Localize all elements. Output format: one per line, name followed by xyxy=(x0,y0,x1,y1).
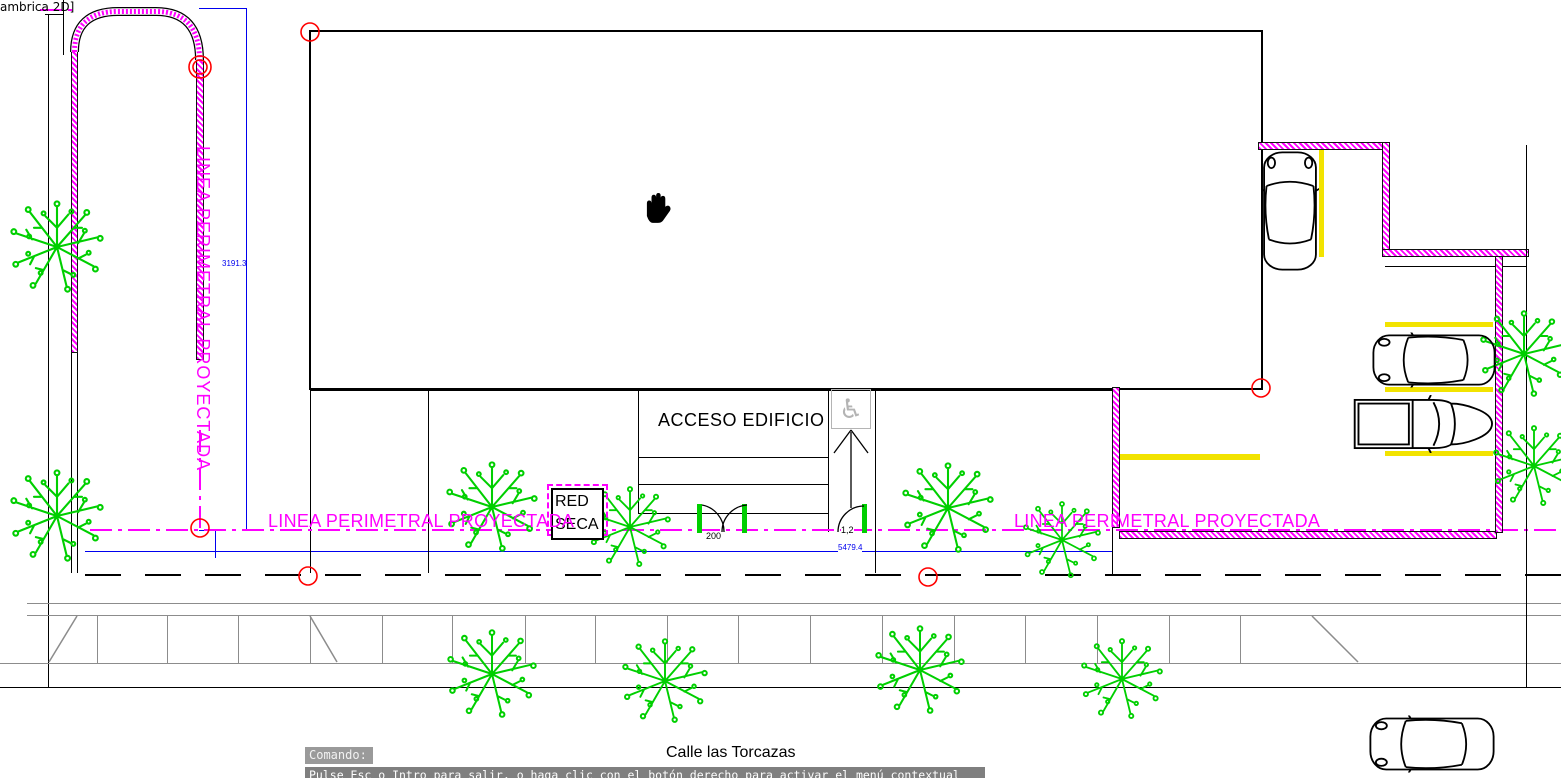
sidewalk-divider xyxy=(810,615,811,663)
sidewalk-divider xyxy=(1169,615,1170,663)
sidewalk-divider xyxy=(97,615,98,663)
plaza-divider xyxy=(428,390,429,573)
street-name-label: Calle las Torcazas xyxy=(666,744,796,762)
tree-icon xyxy=(1082,639,1162,718)
driveway-ramp-lines xyxy=(49,616,1358,662)
facade-line xyxy=(310,390,1113,391)
linea-perimetral-label-left: LINEA PERIMETRAL PROYECTADA xyxy=(268,511,574,532)
accessibility-icon: ♿ xyxy=(831,389,871,429)
sidewalk-edge-line xyxy=(27,603,1561,604)
tree-icon xyxy=(11,470,102,560)
parking-bay-line xyxy=(1385,266,1527,267)
parking-stripe xyxy=(1385,387,1493,392)
osnap-circle xyxy=(299,567,317,585)
wall-top-right-v xyxy=(1382,142,1390,256)
parking-stripe xyxy=(1385,451,1493,456)
tree-icon xyxy=(1481,311,1561,396)
car-icon xyxy=(1260,152,1320,269)
sidewalk-divider xyxy=(954,615,955,663)
tree-icon xyxy=(11,201,102,291)
ramp-arrow xyxy=(834,430,868,508)
lot-boundary-line xyxy=(48,14,49,688)
command-tooltip-bar: Pulse Esc o Intro para salir, o haga cli… xyxy=(305,767,985,778)
red-seca-line1: RED xyxy=(555,493,589,510)
dimension-value-vertical: 3191.3 xyxy=(222,259,246,268)
dimension-bracket-v xyxy=(215,530,216,558)
sidewalk-divider xyxy=(882,615,883,663)
dimension-value-horizontal: 5479.4 xyxy=(838,543,862,552)
ramp-door-label: 1,2 xyxy=(841,525,854,535)
pickup-truck-icon xyxy=(1355,395,1492,453)
parking-stripe xyxy=(1120,454,1260,460)
sidewalk-divider xyxy=(1240,615,1241,663)
sidewalk-divider xyxy=(738,615,739,663)
acceso-edificio-label: ACCESO EDIFICIO xyxy=(658,410,825,431)
wall-top-right-h xyxy=(1258,142,1385,150)
viewport-control-label[interactable]: ambrica 2D] xyxy=(0,0,74,14)
wall-edge-line xyxy=(1112,528,1113,575)
sidewalk-grid-line xyxy=(27,615,1561,616)
perimeter-wall-left-lower xyxy=(71,353,78,573)
command-prompt[interactable]: Comando: xyxy=(305,747,373,764)
tree-icon xyxy=(447,462,536,550)
wall-bottom-right xyxy=(1119,531,1497,539)
linea-perimetral-label-right: LINEA PERIMETRAL PROYECTADA xyxy=(1014,511,1320,532)
tree-icon xyxy=(903,463,992,551)
sidewalk-grid-line xyxy=(0,663,1561,664)
plaza-divider xyxy=(310,389,311,573)
parking-stripe xyxy=(1385,322,1493,327)
sidewalk-divider xyxy=(667,615,668,663)
entrance-step xyxy=(638,513,828,514)
sidewalk-divider xyxy=(1097,615,1098,663)
entrance-step xyxy=(638,457,828,458)
car-icon xyxy=(1373,331,1494,388)
sidewalk-divider xyxy=(1025,615,1026,663)
plaza-divider xyxy=(638,390,639,513)
car-symbols xyxy=(1260,152,1495,773)
site-edge-right xyxy=(1526,145,1527,688)
dimension-tick xyxy=(199,8,247,9)
perimeter-wall-corner xyxy=(75,12,200,61)
linea-perimetral-label-vertical: LINEA PERIMETRAL PROYECTADA xyxy=(192,146,213,471)
tree-icon xyxy=(1494,426,1561,505)
sidewalk-divider xyxy=(167,615,168,663)
wall-right-entry xyxy=(1112,387,1120,528)
plaza-divider xyxy=(875,390,876,573)
dimension-line-vertical xyxy=(246,8,247,530)
wheelchair-glyph: ♿ xyxy=(839,394,863,425)
sidewalk-divider xyxy=(238,615,239,663)
door-width-label: 200 xyxy=(706,531,721,541)
sidewalk-divider xyxy=(595,615,596,663)
building-outline xyxy=(309,30,1263,390)
tree-icon xyxy=(448,630,535,716)
cad-drawing-canvas[interactable]: ambrica 2D] 3191.3 5479.4 xyxy=(0,0,1561,778)
perimeter-wall-left xyxy=(71,50,78,353)
wall-mid-right-h xyxy=(1382,249,1529,257)
property-dashed-line xyxy=(85,574,1561,576)
sidewalk-divider xyxy=(310,615,311,663)
entrance-step xyxy=(638,484,828,485)
wall-far-right-v xyxy=(1495,256,1503,533)
dimension-line-horizontal xyxy=(85,551,1113,552)
plaza-divider xyxy=(828,390,829,532)
tree-icon xyxy=(876,626,963,712)
street-curb-line xyxy=(0,687,1561,688)
sidewalk-divider xyxy=(525,615,526,663)
osnap-circle xyxy=(919,568,937,586)
sidewalk-divider xyxy=(382,615,383,663)
sidewalk-divider xyxy=(452,615,453,663)
car-icon xyxy=(1370,714,1493,773)
parking-stripe xyxy=(1319,150,1324,257)
tree-icon xyxy=(623,639,707,722)
